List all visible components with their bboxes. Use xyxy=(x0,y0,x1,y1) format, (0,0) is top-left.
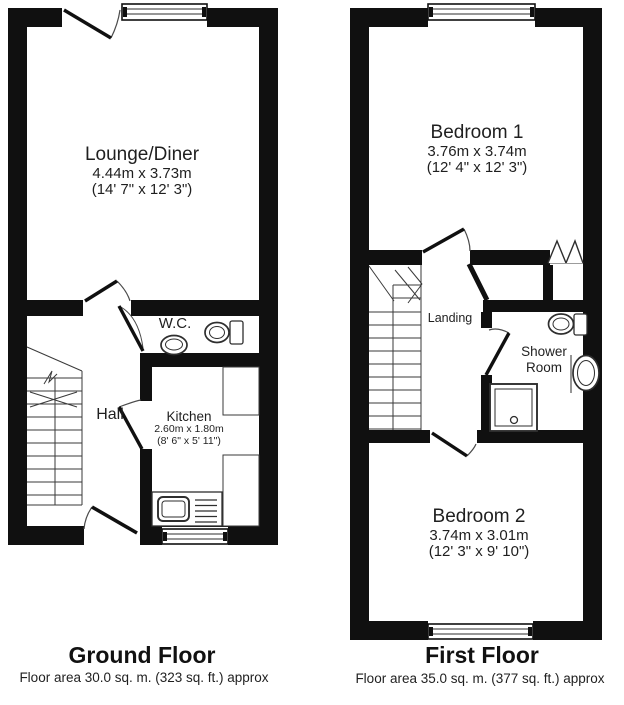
window-end-cap xyxy=(223,532,227,541)
room-dims-metric: 2.60m x 1.80m xyxy=(139,424,239,436)
cupboard-doors xyxy=(548,241,583,263)
room-dims-metric: 3.74m x 3.01m xyxy=(379,528,579,544)
bedroom2-window xyxy=(428,620,533,641)
bifold-door-icon xyxy=(548,241,583,263)
counter xyxy=(223,367,259,415)
window-frame xyxy=(428,624,533,639)
first-floor-area-note: Floor area 35.0 sq. m. (377 sq. ft.) app… xyxy=(344,671,616,687)
bedroom1-window xyxy=(428,4,535,27)
first-floor-title: First Floor xyxy=(362,643,602,668)
wall-segment xyxy=(8,526,278,545)
basin-inner xyxy=(578,361,595,386)
toilet-cistern-icon xyxy=(230,321,243,344)
window-end-cap xyxy=(123,7,127,17)
wc-label: W.C. xyxy=(150,315,200,332)
bedroom1-door xyxy=(423,229,470,252)
wall-segment xyxy=(470,250,550,265)
stairs-break-line xyxy=(369,266,394,301)
wall-segment xyxy=(483,300,602,312)
wall-segment xyxy=(259,8,278,545)
room-name: Lounge/Diner xyxy=(42,144,242,166)
door-swing-arc xyxy=(117,281,130,301)
room-name: Bedroom 1 xyxy=(377,122,577,144)
wall-segment xyxy=(481,312,492,328)
lounge-window xyxy=(122,4,207,27)
room-dims-imperial: (8' 6" x 5' 11") xyxy=(139,436,239,448)
room-name: Landing xyxy=(428,311,473,325)
door-leaf xyxy=(85,281,117,301)
kitchen-sink-unit xyxy=(152,492,222,526)
toilet-bowl-inner xyxy=(210,327,225,339)
bedroom2-door xyxy=(432,433,476,456)
window-end-cap xyxy=(429,7,433,17)
toilet-bowl-inner xyxy=(553,318,569,330)
bedroom2-label: Bedroom 2 3.74m x 3.01m (12' 3" x 9' 10"… xyxy=(379,506,579,560)
lounge-hall-door xyxy=(85,281,130,301)
first-stairs xyxy=(369,265,422,430)
basin-inner xyxy=(166,339,183,350)
stairs-direction-mark xyxy=(408,267,422,284)
room-dims-imperial: (12' 3" x 9' 10") xyxy=(379,544,579,560)
door-leaf xyxy=(432,433,467,456)
window-frame xyxy=(162,529,228,544)
door-swing-arc xyxy=(467,444,476,456)
wall-segment xyxy=(8,8,27,545)
room-dims-metric: 3.76m x 3.74m xyxy=(377,144,577,160)
wall-segment xyxy=(140,449,152,526)
room-name: Hall xyxy=(96,406,124,423)
room-dims-imperial: (14' 7" x 12' 3") xyxy=(42,182,242,198)
wall-segment xyxy=(477,430,602,443)
ground-floor-title: Ground Floor xyxy=(22,643,262,668)
wall-segment xyxy=(140,353,259,367)
landing-label: Landing xyxy=(419,311,481,325)
kitchen-label: Kitchen 2.60m x 1.80m (8' 6" x 5' 11") xyxy=(139,409,239,447)
shower-room-door xyxy=(486,329,509,375)
room-name: Bedroom 2 xyxy=(379,506,579,528)
ground-stairs xyxy=(27,347,82,505)
shower-drain xyxy=(511,417,518,424)
shower-room-label: Shower Room xyxy=(512,344,576,375)
angled-wall xyxy=(469,264,487,300)
wall-segment xyxy=(369,250,422,265)
wall-segment xyxy=(131,300,259,316)
wall-segment xyxy=(27,300,83,316)
counter xyxy=(223,455,259,526)
ground-floor-plan xyxy=(8,4,278,546)
window-frame xyxy=(122,4,207,20)
stairs-break-line xyxy=(27,347,82,371)
door-leaf xyxy=(423,229,464,252)
hall-label: Hall xyxy=(80,406,140,423)
floorplan-page: Lounge/Diner 4.44m x 3.73m (14' 7" x 12'… xyxy=(0,0,624,705)
window-end-cap xyxy=(528,627,532,636)
toilet-cistern-icon xyxy=(574,314,587,335)
bedroom1-label: Bedroom 1 3.76m x 3.74m (12' 4" x 12' 3"… xyxy=(377,122,577,176)
window-end-cap xyxy=(163,532,167,541)
wall-segment xyxy=(350,8,369,640)
door-swing-arc xyxy=(489,329,509,333)
room-dims-imperial: (12' 4" x 12' 3") xyxy=(377,160,577,176)
room-name: Kitchen xyxy=(139,409,239,424)
wall-segment xyxy=(140,353,152,401)
wall-segment xyxy=(369,430,430,443)
window-frame xyxy=(428,4,535,20)
window-end-cap xyxy=(530,7,534,17)
room-name: W.C. xyxy=(159,315,192,332)
door-swing-arc xyxy=(464,229,470,251)
room-name: Shower Room xyxy=(521,344,567,375)
door-leaf xyxy=(486,333,509,375)
room-dims-metric: 4.44m x 3.73m xyxy=(42,166,242,182)
window-end-cap xyxy=(429,627,433,636)
wall-segment xyxy=(543,265,553,302)
window-end-cap xyxy=(202,7,206,17)
ground-floor-area-note: Floor area 30.0 sq. m. (323 sq. ft.) app… xyxy=(0,670,288,686)
lounge-diner-label: Lounge/Diner 4.44m x 3.73m (14' 7" x 12'… xyxy=(42,144,242,198)
kitchen-window xyxy=(162,527,228,546)
